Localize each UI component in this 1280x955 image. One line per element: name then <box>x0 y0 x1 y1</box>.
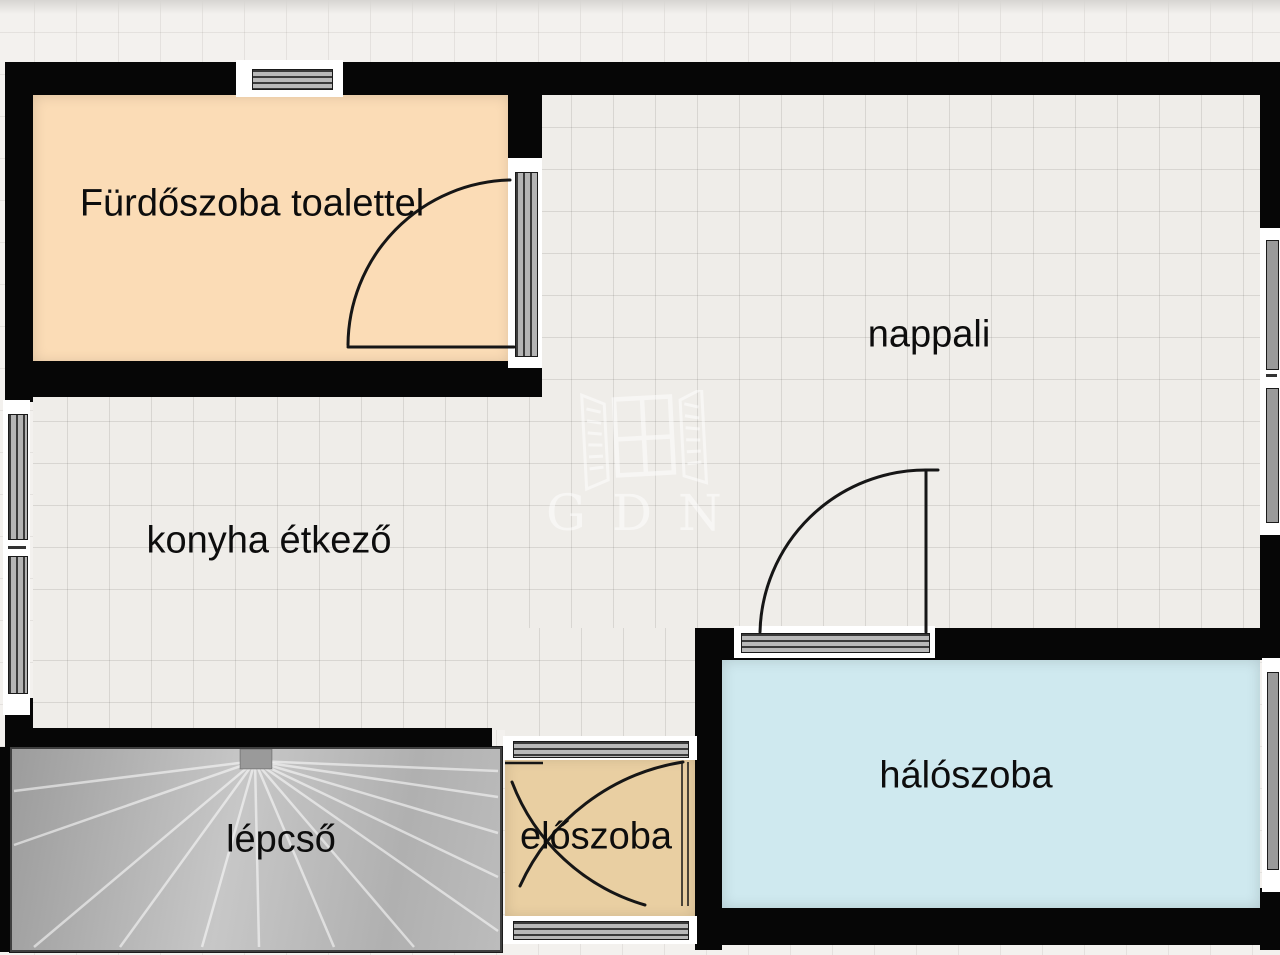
door-leaf-bedroom <box>926 470 938 632</box>
room-label-living: nappali <box>868 314 991 357</box>
room-label-bathroom: Fürdőszoba toalettel <box>80 183 424 226</box>
floor-plan: GDN Fürdőszoba toalettel nappali konyha … <box>0 0 1280 955</box>
door-swing-arcs <box>0 0 1280 955</box>
room-label-stairs: lépcső <box>226 819 336 862</box>
room-label-hall: előszoba <box>520 816 672 859</box>
room-label-bedroom: hálószoba <box>879 755 1052 798</box>
door-arc-bedroom <box>760 470 926 632</box>
room-label-kitchen: konyha étkező <box>146 520 391 563</box>
